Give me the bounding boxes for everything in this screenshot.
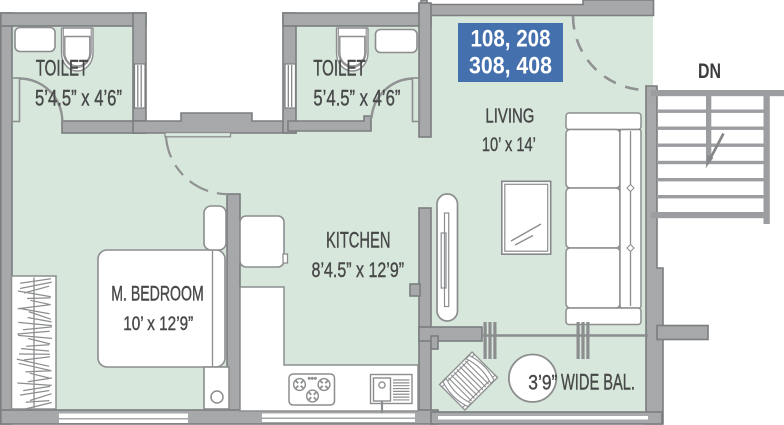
svg-text:308, 408: 308, 408 xyxy=(469,53,552,80)
svg-text:KITCHEN: KITCHEN xyxy=(326,227,391,252)
svg-text:108, 208: 108, 208 xyxy=(471,26,551,53)
svg-text:M. BEDROOM: M. BEDROOM xyxy=(111,283,204,306)
svg-text:10’ x 12’9”: 10’ x 12’9” xyxy=(123,313,193,335)
svg-text:WIDE BAL.: WIDE BAL. xyxy=(561,369,635,394)
svg-text:3’9”: 3’9” xyxy=(528,371,557,394)
svg-text:DN: DN xyxy=(698,60,721,83)
svg-text:8’4.5” x 12’9”: 8’4.5” x 12’9” xyxy=(312,259,405,282)
svg-text:10’ x 14’: 10’ x 14’ xyxy=(482,135,536,156)
svg-text:LIVING: LIVING xyxy=(485,105,534,128)
svg-text:TOILET: TOILET xyxy=(36,55,89,80)
svg-text:TOILET: TOILET xyxy=(313,55,366,80)
svg-text:5’4.5” x 4’6”: 5’4.5” x 4’6” xyxy=(35,85,122,110)
svg-text:5’4.5” x 4’6”: 5’4.5” x 4’6” xyxy=(313,85,400,110)
